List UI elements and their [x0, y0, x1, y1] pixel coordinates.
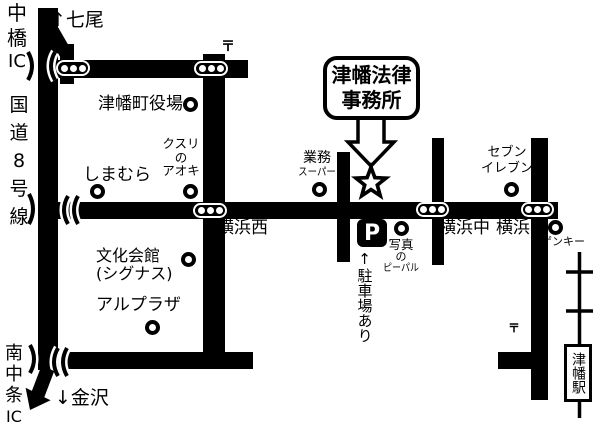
label-seven-eleven: セブン イレブン: [477, 145, 537, 177]
marker-town-hall: [183, 97, 198, 112]
marker-alplaza: [145, 320, 160, 335]
office-name-line1: 津幡法律: [332, 63, 412, 88]
label-yokohama-nishi: 横浜西: [217, 219, 268, 238]
label-bunka-kaikan: 文化会館 (シグナス): [96, 247, 173, 283]
marker-kusuri-no-aoki: [183, 184, 198, 199]
traffic-light-icon: [194, 61, 228, 76]
marker-shimamura: [90, 184, 105, 199]
marker-photo-pepal: [394, 221, 409, 236]
label-minami-chujo-ic: 南 中 条 IC: [1, 343, 27, 427]
office-name-line2: 事務所: [342, 88, 402, 113]
access-map: 津幡法律 事務所 P ↑駐車場あり 津幡駅 〒 〒 ↑七尾 ↓金沢 中 橋 IC…: [0, 0, 603, 429]
marker-seven-eleven: [504, 182, 519, 197]
label-yokohama-naka: 横浜中: [439, 219, 490, 238]
traffic-light-icon: [416, 202, 449, 217]
marker-genky: [548, 220, 563, 235]
label-kusuri-no-aoki: クスリ の アオキ: [158, 137, 204, 178]
direction-kanazawa: ↓金沢: [55, 388, 109, 409]
label-genky: ゲンキー: [541, 236, 585, 248]
parking-note: ↑駐車場あり: [356, 250, 373, 343]
traffic-light-icon: [521, 202, 554, 217]
tsubata-station-label: 津幡駅: [568, 352, 588, 394]
marker-gyomu-super: [312, 182, 327, 197]
label-shimamura: しまむら: [83, 166, 151, 185]
label-gyomu-super: 業務 スーパー: [288, 151, 346, 178]
direction-nanao: ↑七尾: [50, 10, 104, 31]
post-office-icon: 〒: [221, 40, 235, 55]
label-nakabashi-ic: 中 橋 IC: [2, 1, 32, 74]
map-graphics: [0, 0, 603, 429]
label-route8: 国 道 8 号 線: [5, 91, 33, 231]
marker-bunka-kaikan: [181, 252, 196, 267]
office-pointer-arrow-icon: [348, 118, 394, 166]
label-alplaza: アルプラザ: [96, 296, 181, 315]
office-location-star-icon: [351, 162, 391, 200]
post-office-icon: 〒: [508, 322, 520, 335]
traffic-light-icon: [56, 60, 90, 76]
traffic-light-icon: [193, 203, 227, 218]
ic-ramp-brackets: [28, 52, 78, 376]
office-title-box: 津幡法律 事務所: [323, 56, 420, 120]
label-town-hall: 津幡町役場: [98, 95, 183, 114]
label-photo-pepal: 写真 の ピーパル: [372, 238, 430, 275]
label-yokohama: 横浜: [496, 219, 530, 238]
tsubata-station-box: 津幡駅: [564, 344, 592, 402]
